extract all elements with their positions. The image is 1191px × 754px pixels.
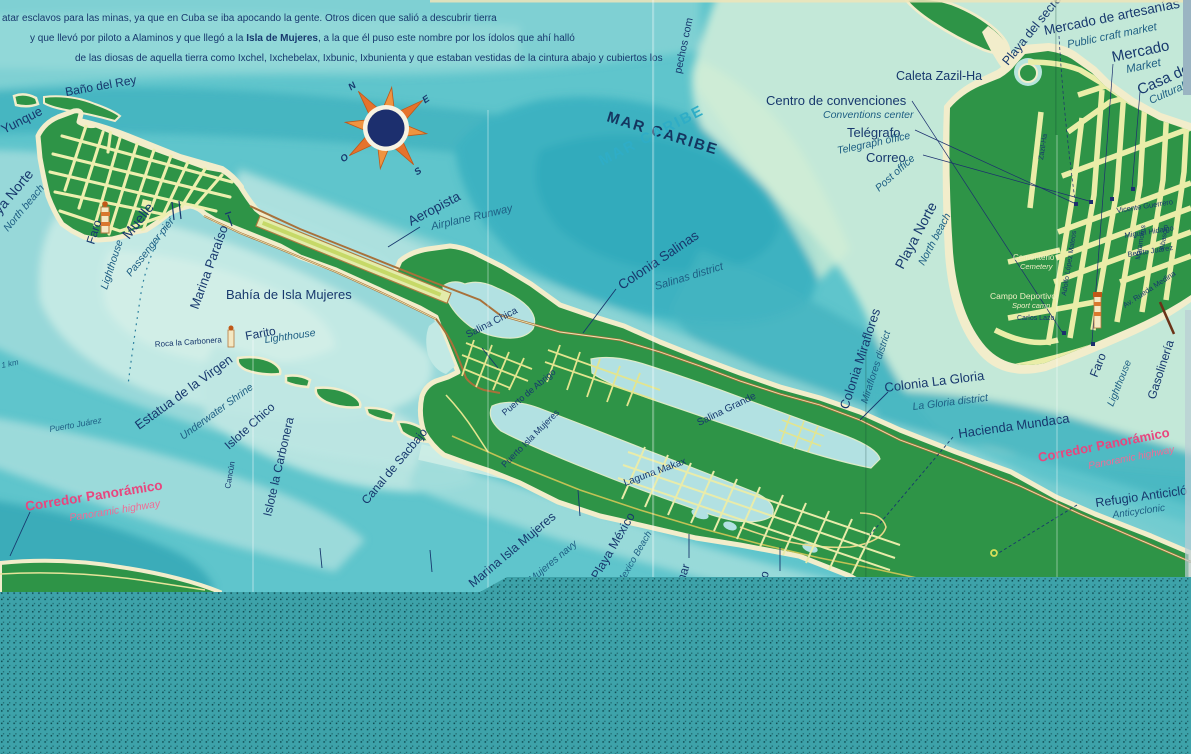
svg-text:Bahía de Isla Mujeres: Bahía de Isla Mujeres	[226, 287, 352, 302]
svg-text:Cementerio: Cementerio	[1013, 253, 1055, 262]
svg-text:y que llevó por piloto a Alami: y que llevó por piloto a Alaminos y que …	[30, 33, 575, 44]
svg-text:Conventions center: Conventions center	[823, 109, 914, 121]
svg-text:Carlos Lazo: Carlos Lazo	[1017, 315, 1054, 322]
svg-text:de las diosas de aquella tierr: de las diosas de aquella tierra como Ixc…	[75, 53, 663, 64]
svg-text:atar esclavos para las minas,: atar esclavos para las minas, ya que en …	[2, 13, 497, 24]
svg-text:Centro de convenciones: Centro de convenciones	[766, 93, 907, 108]
svg-text:Cemetery: Cemetery	[1020, 262, 1054, 271]
svg-text:Campo Deportivo: Campo Deportivo	[990, 291, 1056, 301]
svg-text:Caleta Zazil-Ha: Caleta Zazil-Ha	[896, 69, 982, 83]
svg-text:Sport camp: Sport camp	[1012, 301, 1050, 310]
